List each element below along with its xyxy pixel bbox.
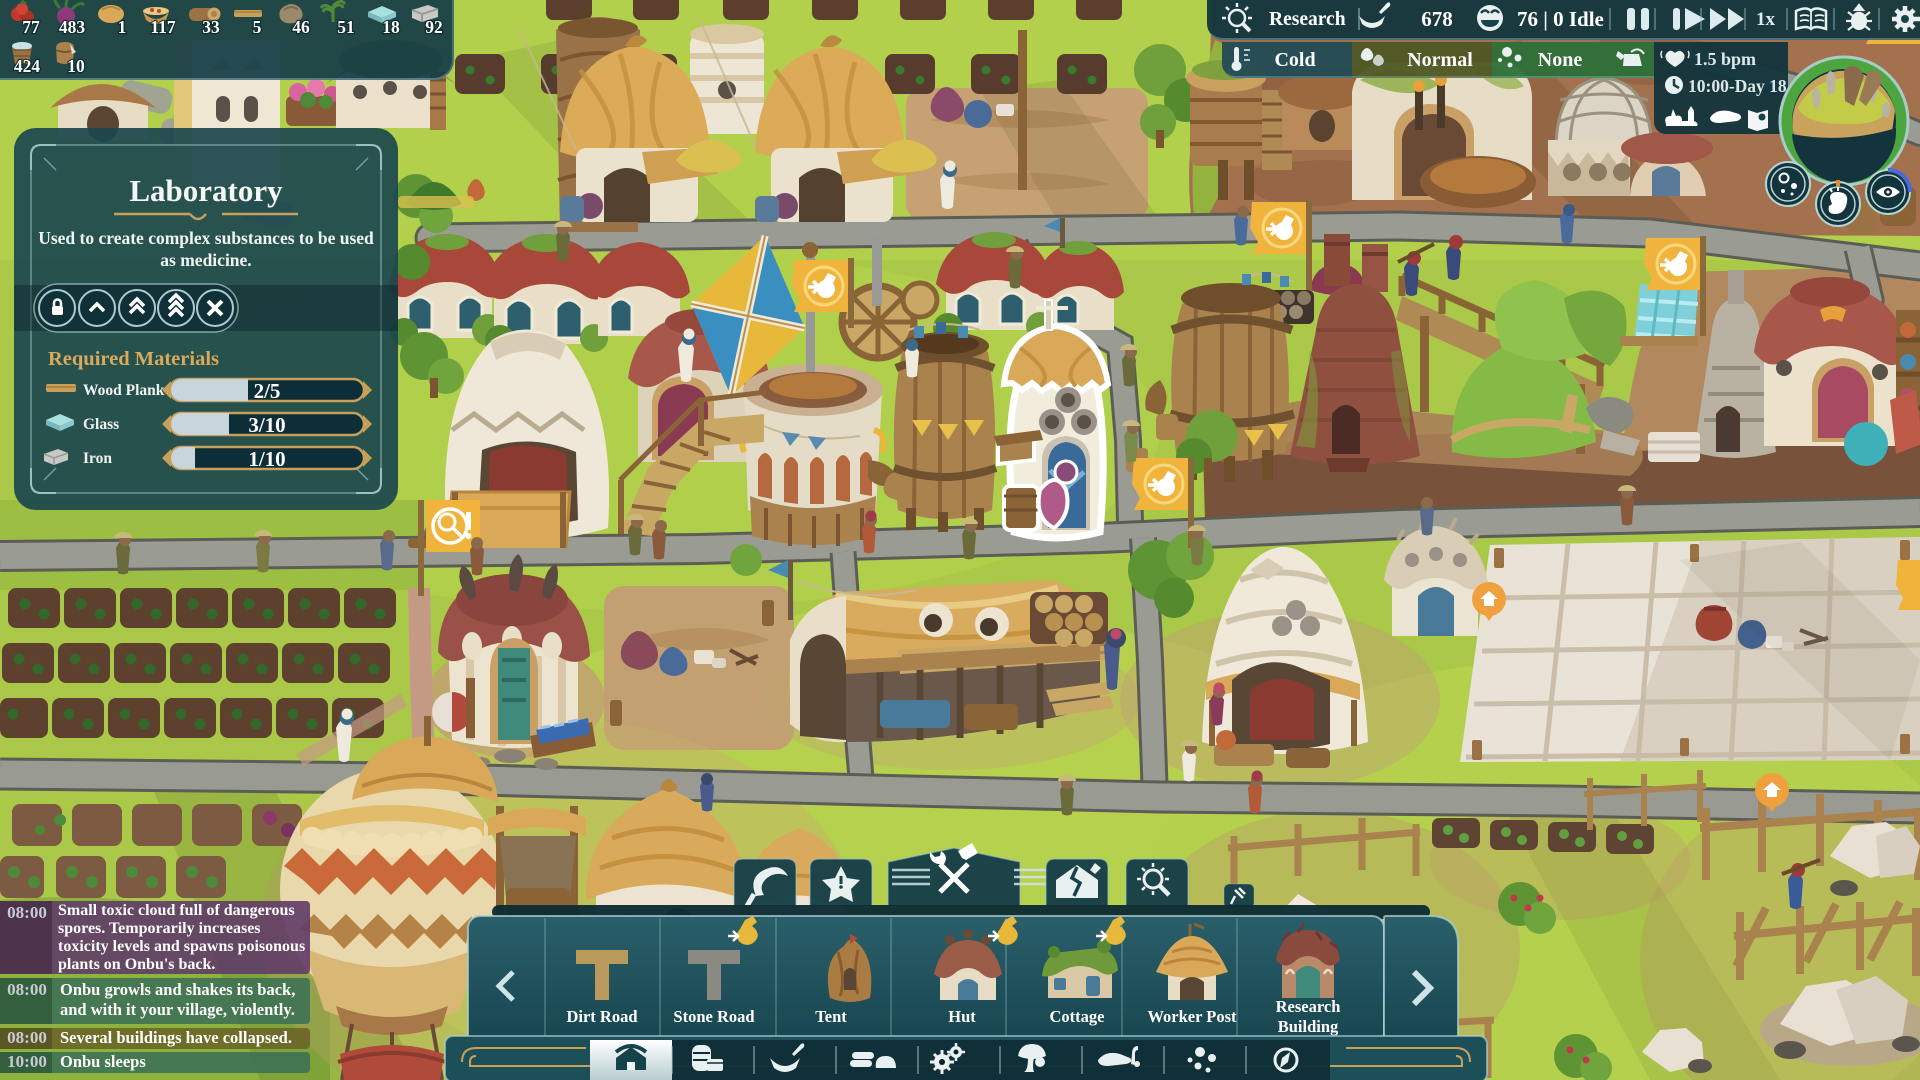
svg-text:Tent: Tent [815, 1007, 847, 1026]
svg-text:424: 424 [14, 56, 41, 76]
svg-text:Building: Building [1278, 1017, 1339, 1036]
svg-text:1/10: 1/10 [248, 447, 285, 471]
svg-text:483: 483 [59, 17, 86, 37]
svg-text:Research: Research [1269, 9, 1346, 30]
svg-text:18: 18 [382, 17, 400, 37]
svg-text:46: 46 [292, 17, 310, 37]
svg-text:Stone Road: Stone Road [673, 1007, 754, 1026]
svg-text:Worker Post: Worker Post [1147, 1007, 1237, 1026]
svg-text:Laboratory: Laboratory [129, 173, 283, 208]
svg-text:3/10: 3/10 [248, 413, 285, 437]
svg-text:Wood Plank: Wood Plank [83, 382, 165, 399]
svg-text:76 | 0 Idle: 76 | 0 Idle [1517, 7, 1604, 31]
svg-text:1.5 bpm: 1.5 bpm [1694, 49, 1756, 69]
svg-text:Dirt Road: Dirt Road [566, 1007, 637, 1026]
svg-text:Cold: Cold [1274, 49, 1315, 71]
svg-text:10: 10 [67, 56, 85, 76]
svg-text:Hut: Hut [948, 1007, 976, 1026]
svg-text:Glass: Glass [83, 416, 119, 433]
svg-text:Iron: Iron [83, 450, 112, 467]
svg-text:678: 678 [1421, 7, 1453, 31]
svg-text:92: 92 [425, 17, 443, 37]
svg-text:Required Materials: Required Materials [48, 348, 219, 370]
svg-text:as medicine.: as medicine. [160, 250, 251, 270]
svg-text:33: 33 [202, 17, 220, 37]
svg-text:Normal: Normal [1407, 49, 1473, 71]
svg-text:Used to create complex substan: Used to create complex substances to be … [38, 228, 374, 248]
svg-text:Research: Research [1276, 997, 1341, 1016]
svg-text:1: 1 [118, 17, 127, 37]
svg-text:51: 51 [337, 17, 355, 37]
svg-text:Cottage: Cottage [1050, 1007, 1105, 1026]
svg-text:77: 77 [22, 17, 40, 37]
svg-text:2/5: 2/5 [254, 379, 281, 403]
svg-text:5: 5 [253, 17, 262, 37]
svg-text:1x: 1x [1756, 9, 1776, 30]
svg-text:None: None [1538, 49, 1583, 71]
svg-text:117: 117 [150, 17, 176, 37]
